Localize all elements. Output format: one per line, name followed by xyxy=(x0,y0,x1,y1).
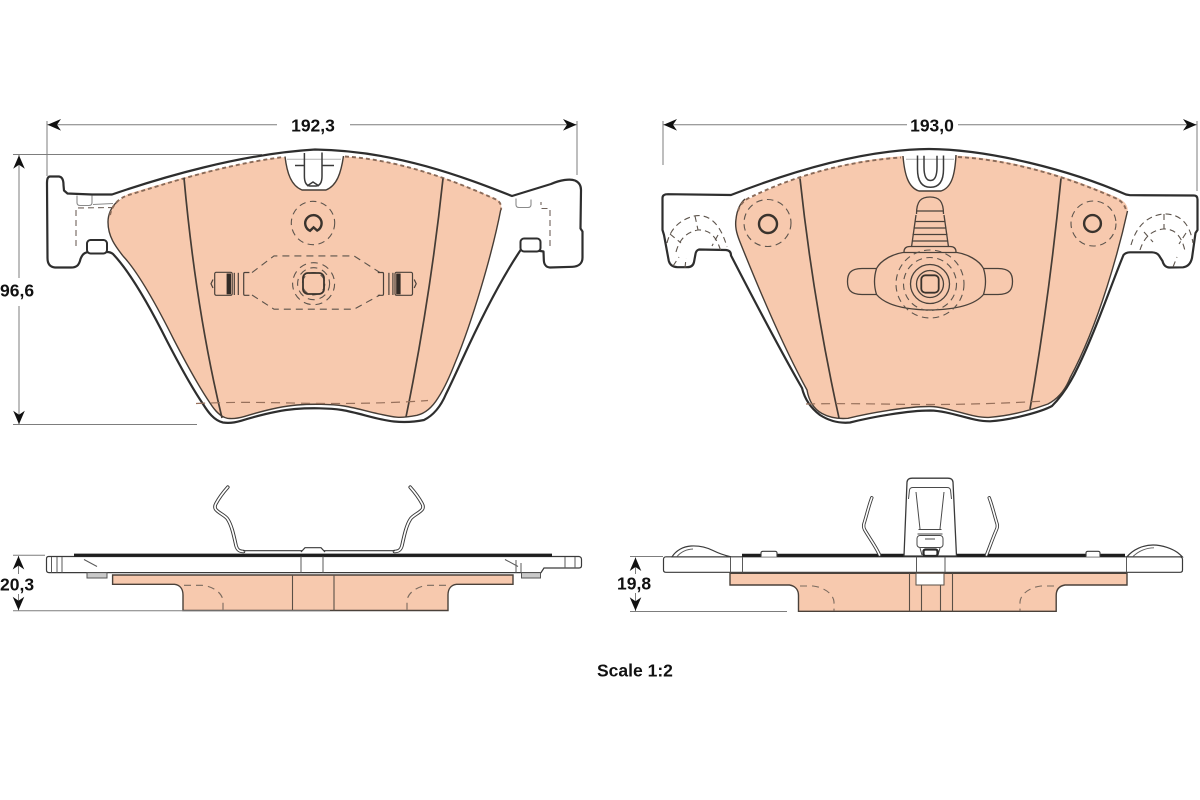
svg-text:192,3: 192,3 xyxy=(291,116,335,136)
svg-text:Scale 1:2: Scale 1:2 xyxy=(597,661,673,681)
svg-text:20,3: 20,3 xyxy=(0,575,34,595)
svg-text:193,0: 193,0 xyxy=(910,116,954,136)
svg-text:19,8: 19,8 xyxy=(617,574,651,594)
svg-text:96,6: 96,6 xyxy=(0,281,34,301)
